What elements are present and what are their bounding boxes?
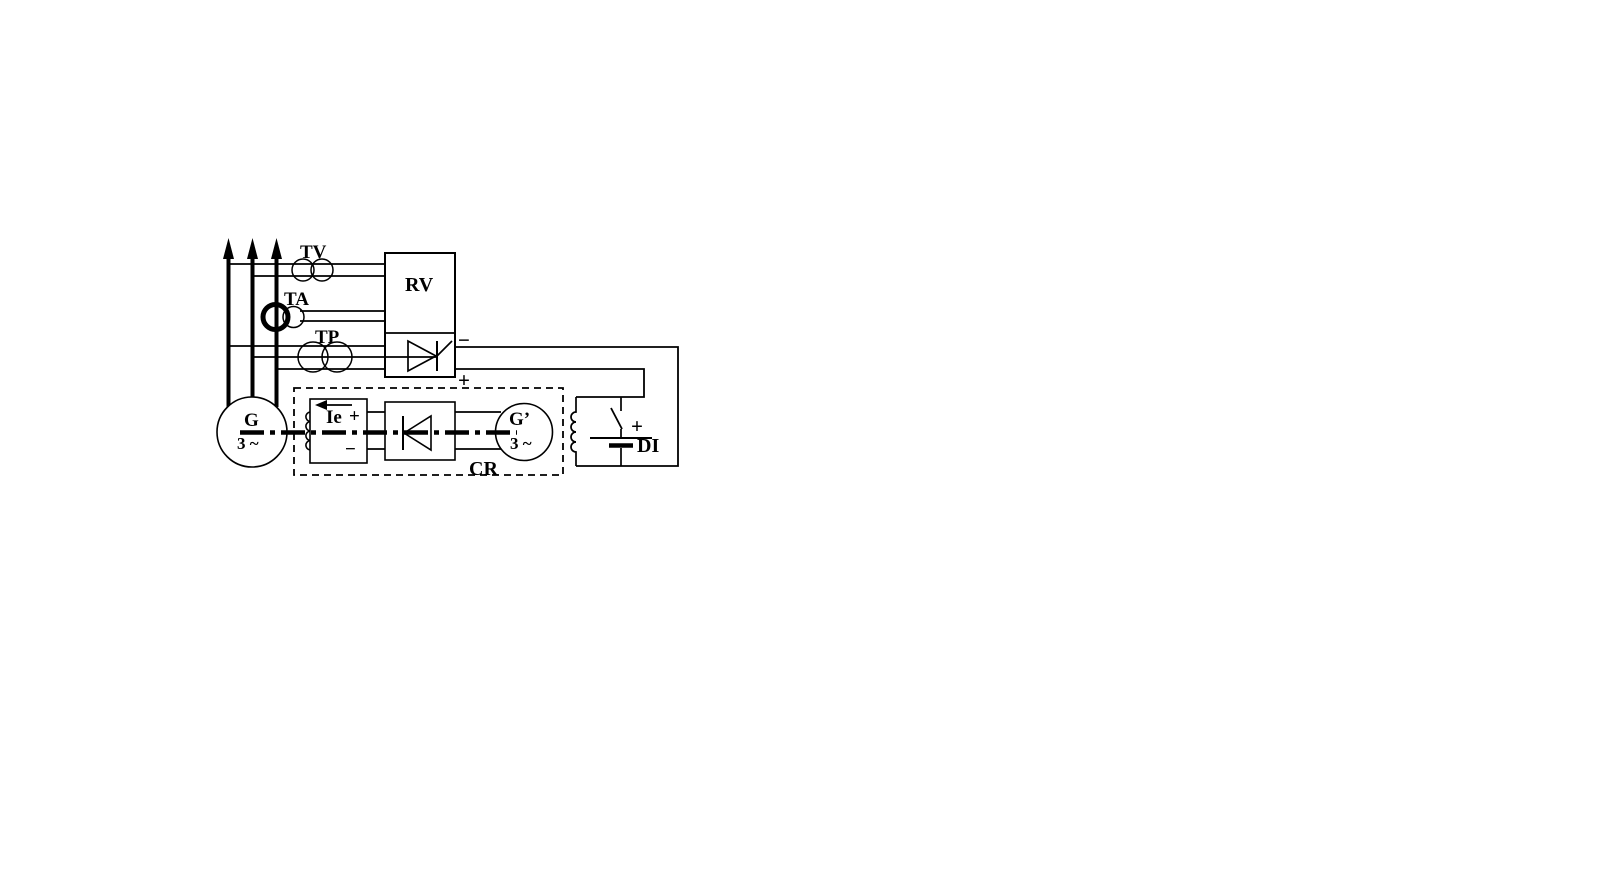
- arrow-up-icon: [271, 238, 282, 259]
- tv-label: TV: [300, 242, 327, 263]
- main-generator-phase: 3 ~: [237, 434, 259, 453]
- regulator-box: [385, 253, 455, 377]
- ie-label: Ie: [326, 407, 342, 428]
- thyristor-triangle: [408, 341, 436, 371]
- main-generator-label: G: [244, 410, 259, 431]
- arrow-up-icon: [247, 238, 258, 259]
- tp-label: TP: [315, 327, 340, 348]
- exciter-field-coil: [571, 397, 576, 466]
- rv-minus-label: −: [458, 328, 470, 352]
- circuit-diagram: TV TA TP RV − + + DI CR: [0, 0, 1612, 894]
- plus-bus: [455, 369, 644, 397]
- field-plus-label: +: [349, 406, 360, 427]
- rv-label: RV: [405, 274, 434, 296]
- arrow-up-icon: [223, 238, 234, 259]
- switch-blade: [611, 408, 622, 429]
- di-label: DI: [637, 435, 659, 457]
- ta-label: TA: [284, 289, 309, 310]
- cr-label: CR: [469, 458, 498, 480]
- rv-outline: [385, 253, 455, 377]
- phase-arrowheads: [223, 238, 282, 259]
- exciter-generator-phase: 3 ~: [510, 434, 532, 453]
- thyristor-gate: [437, 341, 452, 356]
- field-minus-label: −: [345, 439, 356, 460]
- exciter-generator-label: G’: [509, 409, 530, 430]
